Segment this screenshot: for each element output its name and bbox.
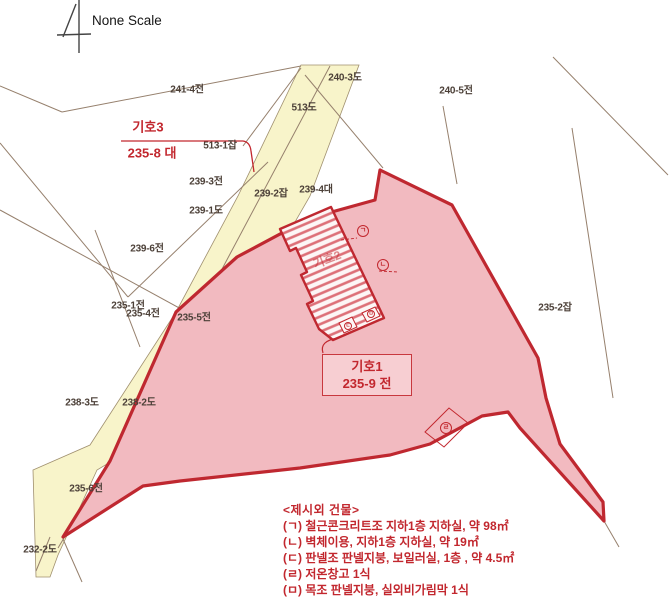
- marker-g: ㄱ: [357, 225, 369, 237]
- subject3-name: 기호3: [132, 117, 163, 136]
- parcel-label: 240-5전: [439, 82, 473, 97]
- parcel-label: 239-2잡: [254, 185, 288, 200]
- legend-item: (ㄷ) 판넬조 판넬지붕, 보일러실, 1층 , 약 4.5㎡: [283, 550, 514, 566]
- subject3-parcel: 235-8 대: [128, 143, 177, 162]
- parcel-label: 239-4대: [299, 181, 333, 196]
- parcel-label: 513-1잡: [203, 137, 237, 152]
- marker-m: ㅁ: [367, 310, 375, 318]
- parcel-label: 239-1도: [189, 202, 223, 217]
- parcel-label: 235-2잡: [538, 299, 572, 314]
- marker-r: ㄹ: [440, 422, 452, 434]
- parcel-label: 241-4전: [170, 81, 204, 96]
- subject1-label-box: 기호1 235-9 전: [322, 354, 412, 396]
- legend-title: <제시외 건물>: [283, 502, 514, 518]
- parcel-label: 238-2도: [122, 394, 156, 409]
- parcel-label: 239-3전: [189, 173, 223, 188]
- parcel-label: 235-5전: [177, 309, 211, 324]
- parcel-label: 239-6전: [130, 240, 164, 255]
- legend-item: (ㄱ) 철근콘크리트조 지하1층 지하실, 약 98㎡: [283, 518, 514, 534]
- legend-item: (ㅁ) 목조 판넬지붕, 실외비가림막 1식: [283, 582, 514, 598]
- legend-item: (ㄹ) 저온창고 1식: [283, 566, 514, 582]
- marker-n: ㄴ: [377, 259, 389, 271]
- scale-note: None Scale: [92, 13, 162, 28]
- parcel-label: 513도: [291, 99, 316, 114]
- parcel-label: 238-3도: [65, 394, 99, 409]
- subject1-name: 기호1: [351, 358, 382, 375]
- subject1-parcel: 235-9 전: [343, 375, 392, 392]
- cadastral-map: None Scale 241-4전 240-3도 240-5전 513도 513…: [0, 0, 672, 600]
- parcel-label: 232-2도: [23, 541, 57, 556]
- north-arrow-icon: [57, 0, 91, 53]
- legend: <제시외 건물> (ㄱ) 철근콘크리트조 지하1층 지하실, 약 98㎡ (ㄴ)…: [283, 502, 514, 598]
- marker-d: ㄷ: [344, 322, 352, 330]
- legend-item: (ㄴ) 벽체이용, 지하1층 지하실, 약 19㎡: [283, 534, 514, 550]
- parcel-label: 235-6전: [69, 480, 103, 495]
- parcel-label: 235-4전: [126, 305, 160, 320]
- parcel-label: 240-3도: [328, 69, 362, 84]
